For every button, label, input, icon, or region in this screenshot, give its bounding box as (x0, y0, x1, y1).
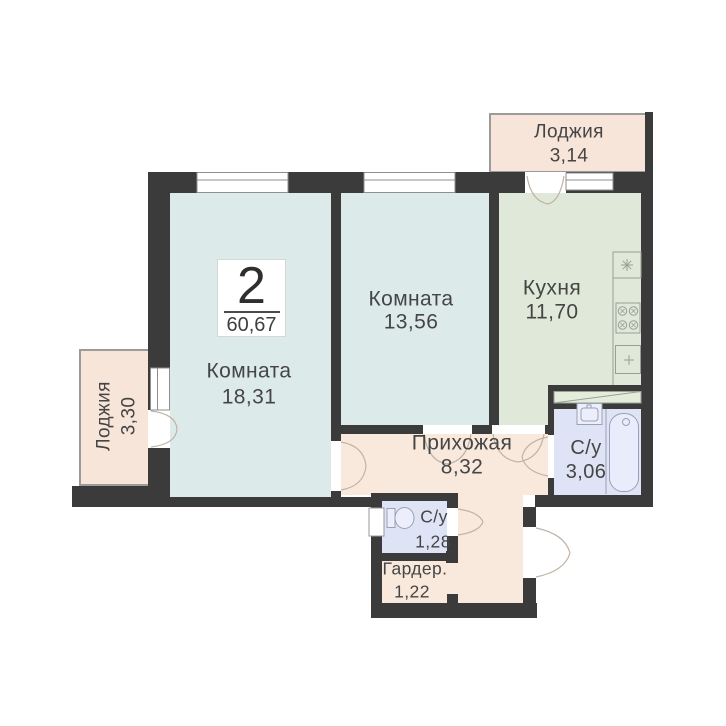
label-kitchen: Кухня (523, 276, 581, 299)
toilet-icon (387, 508, 414, 529)
plan-linework (0, 0, 726, 726)
area-room-1: 18,31 (222, 385, 277, 408)
area-kitchen: 11,70 (526, 300, 579, 323)
label-loggia-left: Лоджия 3,30 (92, 381, 141, 451)
label-room-2: Комната (368, 287, 453, 310)
area-loggia-top: 3,14 (550, 147, 589, 168)
label-wardrobe: Гардер. (383, 559, 448, 578)
duct-icon (369, 508, 384, 536)
label-wc: С/у (420, 507, 447, 526)
door-arc-wc (458, 509, 483, 535)
floorplan: 2 60,67 Лоджия 3,14 Кухня 11,70 Комната … (0, 0, 726, 726)
area-bathroom: 3,06 (566, 461, 607, 483)
door-arc-entrance (536, 528, 570, 577)
kitchen-counter-icon (613, 252, 641, 385)
total-area: 60,67 (218, 314, 285, 336)
label-loggia-left-area: 3,30 (117, 381, 142, 451)
label-hallway: Прихожая (412, 431, 513, 454)
area-wc: 1,28 (415, 532, 451, 551)
area-wardrobe: 1,22 (394, 582, 430, 601)
area-room-2: 13,56 (384, 310, 439, 333)
label-bathroom: С/у (570, 437, 601, 459)
door-arc-bathroom (522, 437, 548, 476)
label-loggia-top: Лоджия (534, 123, 604, 144)
area-hallway: 8,32 (441, 455, 483, 478)
bathtub-icon (606, 409, 639, 494)
door-arc-room-1 (341, 442, 366, 490)
label-room-1: Комната (206, 359, 291, 382)
vent-shaft (554, 392, 641, 404)
label-loggia-left-name: Лоджия (92, 381, 117, 451)
kitchen-cabinet-icon (616, 346, 641, 374)
apartment-type-badge: 2 60,67 (217, 259, 286, 337)
stove-icon (616, 303, 640, 333)
kitchen-sink-icon (613, 252, 641, 278)
rooms-count: 2 (218, 261, 285, 311)
bathroom-sink-icon (577, 404, 602, 425)
